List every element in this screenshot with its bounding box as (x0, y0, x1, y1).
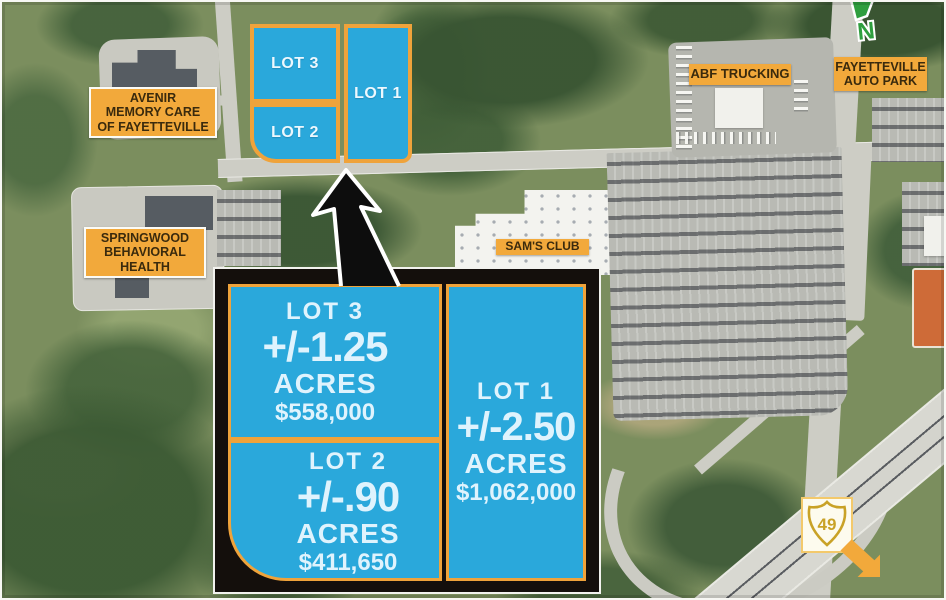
abf-trucking-building (715, 88, 763, 128)
auto-park-parking-lot (872, 98, 946, 162)
orange-roof-building (912, 268, 946, 348)
springwood-building (145, 196, 213, 230)
mini-plan-lot-2-label: LOT 2 (271, 124, 319, 142)
mini-plan-lot-3: LOT 3 (250, 24, 340, 103)
inset-lot-1-price: $1,062,000 (449, 479, 583, 506)
inset-lot-1-unit: ACRES (449, 449, 583, 479)
label-springwood-behavioral-health: SPRINGWOOD BEHAVIORAL HEALTH (84, 227, 206, 278)
label-avenir-memory-care: AVENIR MEMORY CARE OF FAYETTEVILLE (89, 87, 217, 138)
east-building (924, 216, 946, 256)
aerial-site-map: LOT 3 LOT 2 LOT 1 AVENIR MEMORY CARE OF … (0, 0, 946, 600)
abf-trailer-row-south (676, 132, 776, 144)
inset-lot-2-name: LOT 2 (257, 449, 439, 475)
mini-plan-lot-1: LOT 1 (344, 24, 412, 163)
inset-lot-3-size: +/-1.25 (231, 325, 419, 369)
inset-lot-1-name: LOT 1 (449, 379, 583, 405)
inset-lot-1-size: +/-2.50 (449, 405, 583, 449)
mini-plan-lot-1-label: LOT 1 (354, 85, 402, 103)
mini-plan-lot-3-label: LOT 3 (271, 55, 319, 73)
inset-lot-2-size: +/-.90 (257, 475, 439, 519)
inset-lot-3: LOT 3 +/-1.25 ACRES $558,000 (228, 284, 442, 440)
label-fayetteville-auto-park: FAYETTEVILLE AUTO PARK (834, 57, 927, 91)
highway-49-shield: 49 (801, 497, 853, 553)
inset-lot-2-price: $411,650 (257, 549, 439, 576)
highway-route-number: 49 (818, 515, 837, 534)
us-route-shield-icon: 49 (803, 499, 851, 551)
inset-lot-3-price: $558,000 (231, 399, 419, 426)
lot-detail-inset: LOT 3 +/-1.25 ACRES $558,000 LOT 2 +/-.9… (213, 267, 601, 594)
inset-lot-1: LOT 1 +/-2.50 ACRES $1,062,000 (446, 284, 586, 581)
inset-lot-2: LOT 2 +/-.90 ACRES $411,650 (228, 440, 442, 581)
springwood-parking-lot (217, 190, 281, 266)
inset-lot-2-unit: ACRES (257, 519, 439, 549)
mini-plan-lot-2: LOT 2 (250, 103, 340, 163)
label-abf-trucking: ABF TRUCKING (689, 64, 791, 85)
inset-lot-3-unit: ACRES (231, 369, 419, 399)
label-sams-club: SAM'S CLUB (496, 239, 589, 255)
abf-trailer-row-east (794, 80, 808, 116)
sams-club-parking-lot (607, 147, 849, 421)
inset-lot-3-name: LOT 3 (231, 299, 419, 325)
